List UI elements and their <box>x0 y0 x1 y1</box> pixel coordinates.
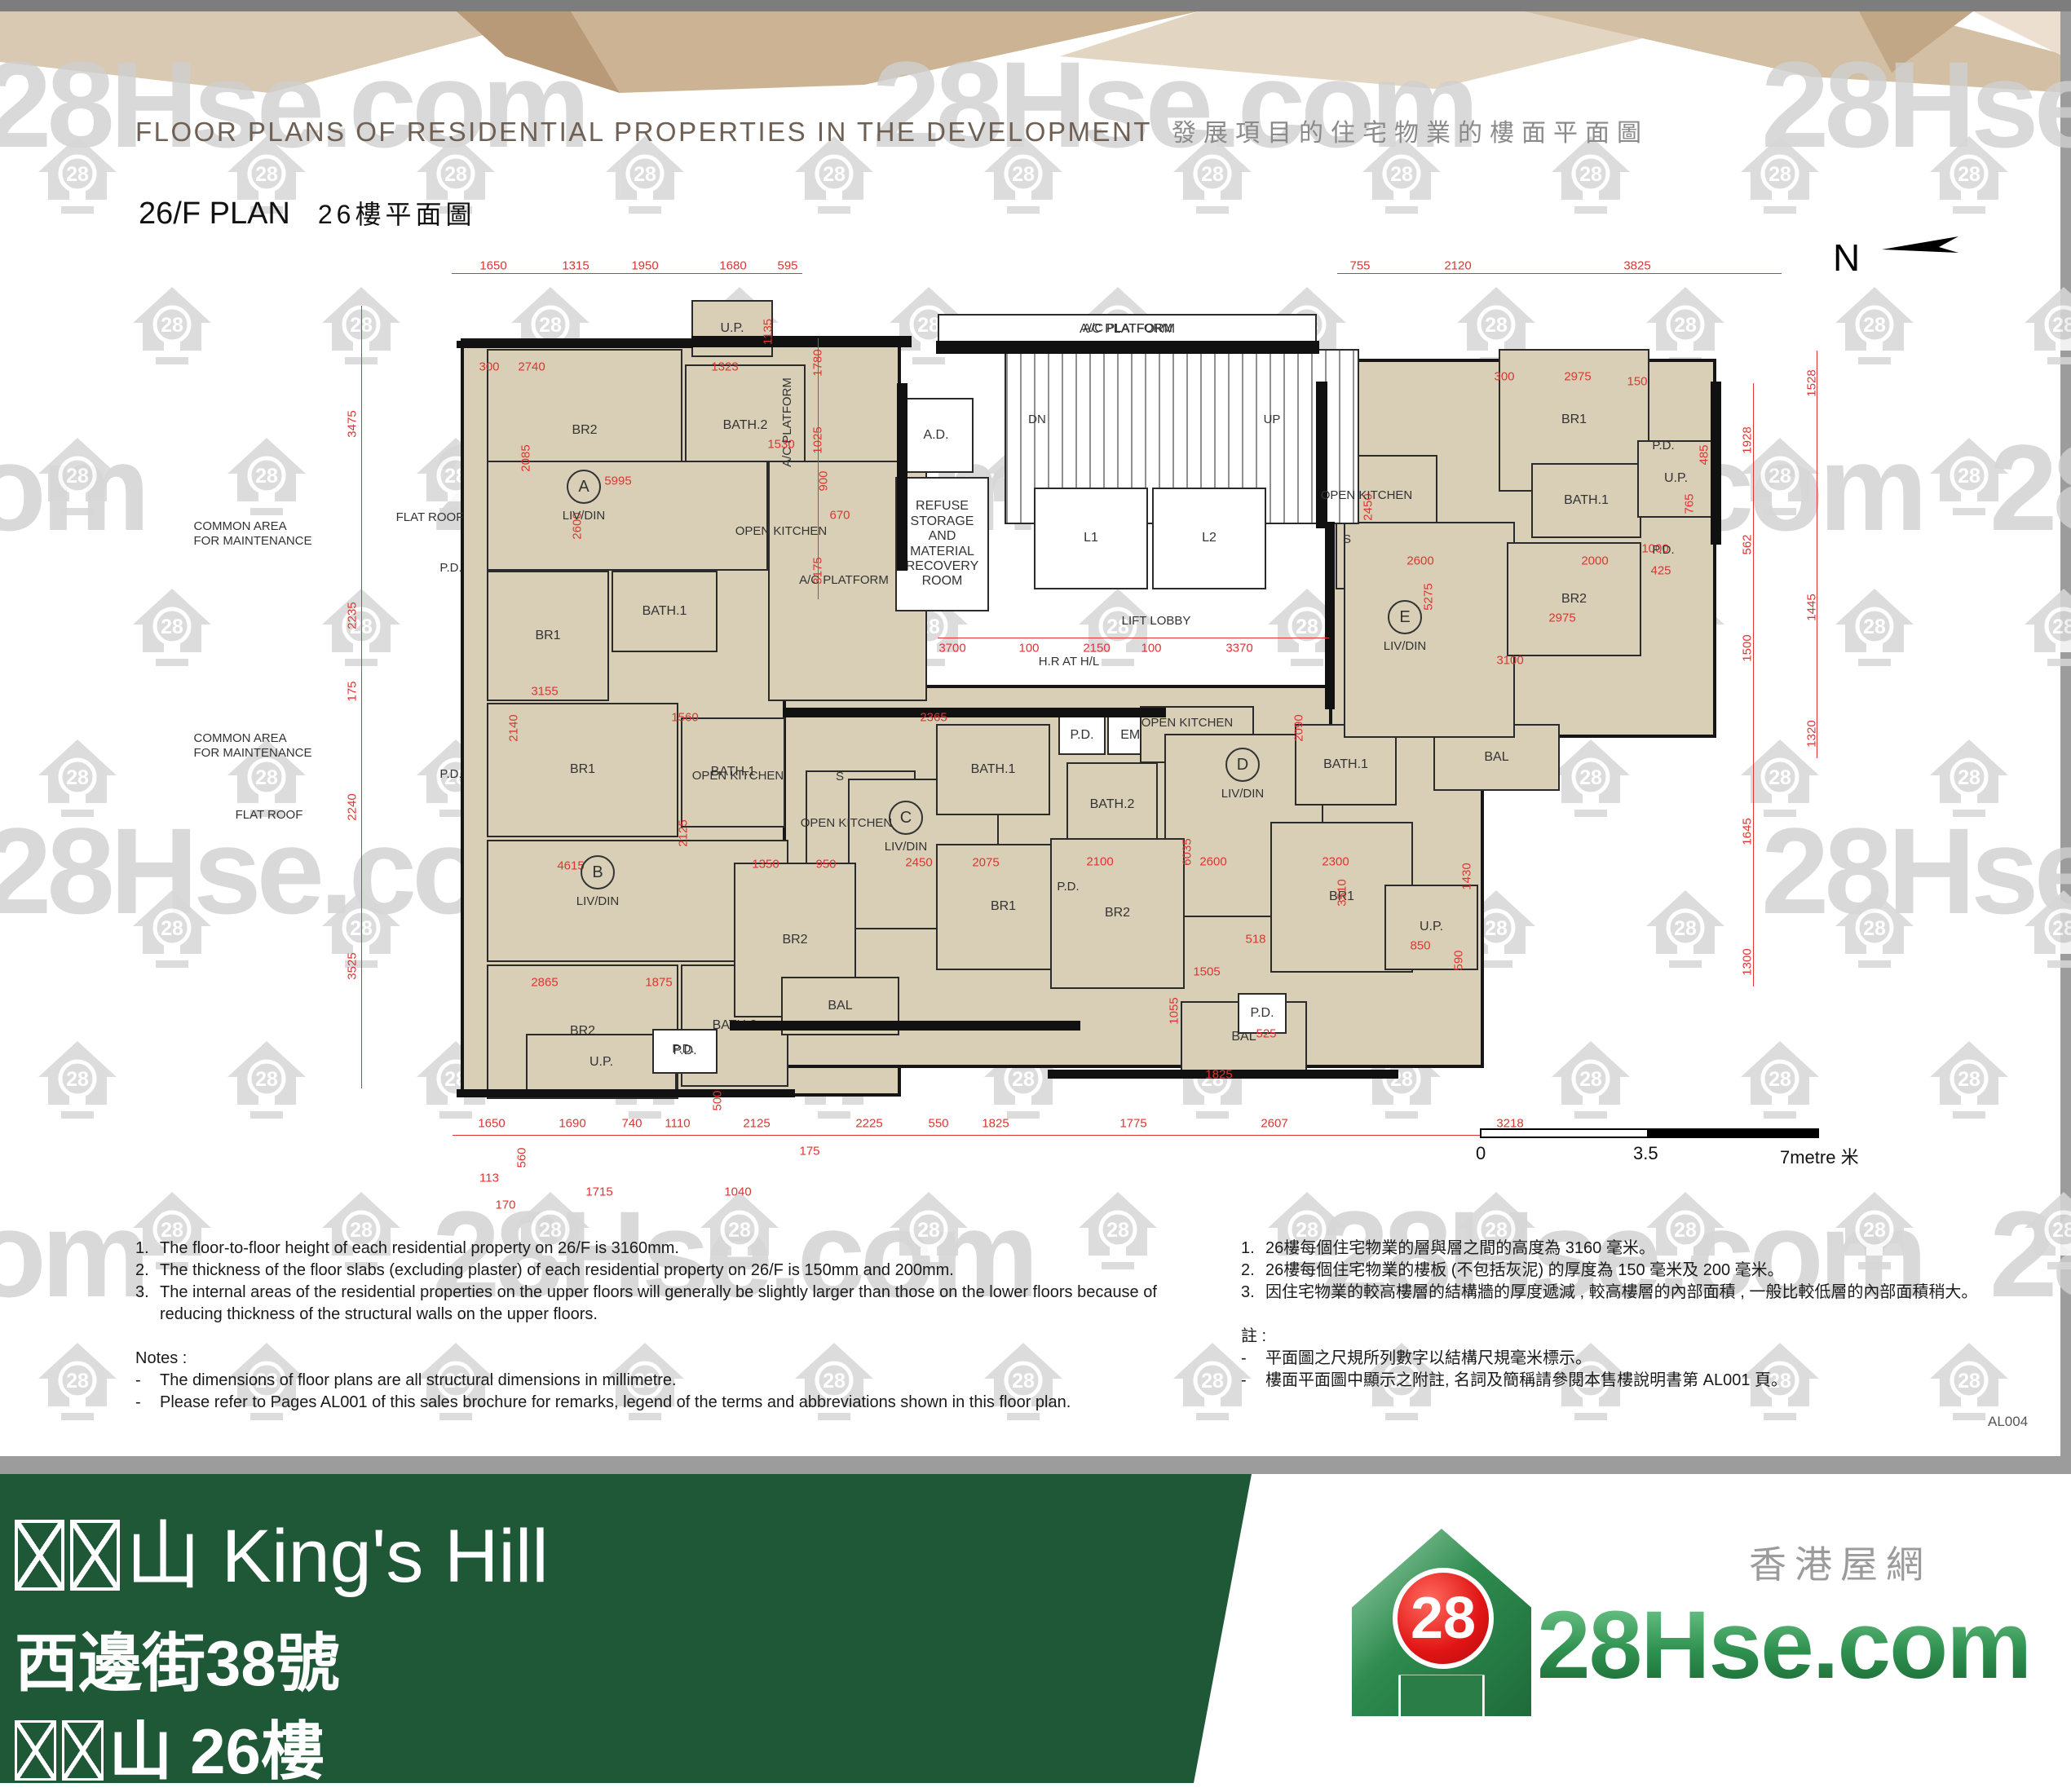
note-bullet: -The dimensions of floor plans are all s… <box>135 1370 1203 1392</box>
north-indicator: N <box>1833 235 1962 280</box>
dimension-value: 1560 <box>671 711 698 725</box>
dimension-value: 3475 <box>346 410 360 437</box>
plan-label-open-kitchen: OPEN KITCHEN <box>1321 488 1413 503</box>
dimension-value: 670 <box>829 509 850 523</box>
room-l2: L2 <box>1152 488 1266 589</box>
dimension-value: 1690 <box>559 1117 585 1131</box>
dimension-value: 550 <box>928 1117 948 1131</box>
note-text: 平面圖之尺規所列數字以結構尺規毫米標示。 <box>1265 1348 2024 1370</box>
house-door-icon <box>1401 1675 1482 1716</box>
note-text: The thickness of the floor slabs (exclud… <box>160 1260 1203 1282</box>
dimension-value: 1025 <box>811 426 825 453</box>
dimension-value: 1825 <box>982 1117 1009 1131</box>
dimension-value: 100 <box>1141 642 1161 655</box>
unit-circle-b: B <box>581 855 615 889</box>
wall-segment <box>783 708 1166 717</box>
dimension-value: 2865 <box>531 976 558 990</box>
room-br1: BR1 <box>487 571 609 701</box>
page-code: AL004 <box>1988 1414 2028 1430</box>
dimension-value: 3700 <box>938 642 965 655</box>
room-bath-2: BATH.2 <box>1066 762 1158 848</box>
note-number: 3. <box>1241 1282 1265 1304</box>
missing-glyph-box <box>62 1720 104 1781</box>
dimension-value: 3370 <box>1225 642 1252 655</box>
wall-segment <box>1316 382 1327 528</box>
dimension-line <box>938 638 1329 638</box>
dimension-value: 1680 <box>719 259 746 273</box>
dimension-value: 5995 <box>604 474 631 488</box>
dimension-value: 2740 <box>518 360 545 374</box>
dimension-value: 300 <box>479 360 499 374</box>
dimension-value: 3510 <box>1336 879 1349 906</box>
logo-badge-28: 28 <box>1393 1568 1494 1669</box>
plan-label-p-d: P.D. <box>672 1042 694 1057</box>
dimension-value: 2975 <box>1548 611 1575 625</box>
plan-label-a-c-platform: A/C PLATFORM <box>780 377 795 467</box>
floor-info: 山 26樓 <box>15 1701 325 1792</box>
dimension-line <box>452 273 802 274</box>
missing-glyph-box <box>15 1720 56 1781</box>
plan-label-s: S <box>1343 532 1351 547</box>
plan-label-common-area-for-maintenance: COMMON AREA FOR MAINTENANCE <box>193 519 311 549</box>
note-item: 1.The floor-to-floor height of each resi… <box>135 1238 1203 1260</box>
dimension-value: 595 <box>777 259 797 273</box>
note-bullet: -Please refer to Pages AL001 of this sal… <box>135 1392 1203 1414</box>
dimension-value: 2235 <box>346 602 360 629</box>
scale-start: 0 <box>1476 1143 1486 1164</box>
dimension-value: 560 <box>515 1147 529 1167</box>
note-number: 1. <box>135 1238 160 1260</box>
north-label: N <box>1833 236 1860 279</box>
wall-segment <box>730 1021 1080 1031</box>
plan-label-up: UP <box>1264 413 1281 427</box>
dimension-value: 518 <box>1245 933 1265 947</box>
dimension-value: 755 <box>1349 259 1370 273</box>
page-bottom-border <box>0 1456 2071 1474</box>
note-bullet: -樓面平面圖中顯示之附註, 名詞及簡稱請參閱本售樓說明書第 AL001 頁。 <box>1241 1370 2024 1392</box>
room-bath-1: BATH.1 <box>612 571 718 652</box>
dimension-value: 1715 <box>585 1185 612 1199</box>
dimension-value: 1950 <box>631 259 658 273</box>
floor-info-text: 山 26樓 <box>108 1715 324 1787</box>
dimension-value: 2125 <box>677 819 691 846</box>
dimension-value: 2300 <box>1322 855 1349 869</box>
plan-label-open-kitchen: OPEN KITCHEN <box>692 769 784 783</box>
dimension-value: 2100 <box>1086 855 1113 869</box>
plan-label-open-kitchen: OPEN KITCHEN <box>735 524 828 539</box>
bullet-dash: - <box>135 1392 160 1414</box>
floor-plan: BR2BATH.2BATH.1BR1U.P.BR1BATH.1BR2BATH.2… <box>0 0 2071 1223</box>
dimension-value: 1780 <box>811 349 825 376</box>
scale-end: 7metre 米 <box>1780 1143 1859 1169</box>
dimension-value: 300 <box>1494 370 1514 384</box>
dimension-value: 2240 <box>346 793 360 820</box>
logo-tagline: 香港屋網 <box>1749 1535 1932 1589</box>
development-name-text: 山 King's Hill <box>126 1515 549 1598</box>
note-item: 2.26樓每個住宅物業的樓板 (不包括灰泥) 的厚度為 150 毫米及 200 … <box>1241 1260 2024 1282</box>
dimension-value: 2075 <box>972 856 999 870</box>
dimension-value: 2975 <box>1564 370 1591 384</box>
notes-label: 註 : <box>1241 1326 2024 1348</box>
site-logo[interactable]: 28 28Hse.com 香港屋網 <box>1345 1504 2047 1749</box>
bullet-dash: - <box>1241 1370 1265 1392</box>
dimension-value: 740 <box>621 1117 642 1131</box>
scale-bar-black-segment <box>1649 1128 1819 1138</box>
dimension-value: 425 <box>1650 564 1671 578</box>
note-text: 26樓每個住宅物業的樓板 (不包括灰泥) 的厚度為 150 毫米及 200 毫米… <box>1265 1260 2024 1282</box>
note-text: The dimensions of floor plans are all st… <box>160 1370 1203 1392</box>
note-text: 因住宅物業的較高樓層的結構牆的厚度遞減 , 較高樓層的內部面積 , 一般比較低層… <box>1265 1282 2024 1304</box>
room-br2: BR2 <box>1507 542 1641 656</box>
wall-segment <box>897 383 907 571</box>
dimension-value: 525 <box>1256 1027 1276 1041</box>
dimension-value: 2125 <box>743 1117 770 1131</box>
plan-label-lift-lobby: LIFT LOBBY <box>1122 614 1191 629</box>
plan-label-liv-din: LIV/DIN <box>1384 639 1427 654</box>
plan-label-p-d: P.D. <box>1652 439 1674 453</box>
dimension-value: 3525 <box>346 952 360 979</box>
note-number: 2. <box>1241 1260 1265 1282</box>
room-bath-1: BATH.1 <box>1531 463 1641 538</box>
wall-segment <box>1325 522 1335 709</box>
street-address-text: 西邊街38號 <box>15 1627 340 1699</box>
dimension-value: 590 <box>1452 950 1466 970</box>
unit-circle-c: C <box>889 801 923 835</box>
notes-label: Notes : <box>135 1348 1203 1370</box>
bullet-dash: - <box>135 1370 160 1392</box>
note-text: 樓面平面圖中顯示之附註, 名詞及簡稱請參閱本售樓說明書第 AL001 頁。 <box>1265 1370 2024 1392</box>
plan-label-liv-din: LIV/DIN <box>885 840 928 854</box>
dimension-value: 950 <box>815 858 836 872</box>
development-name: 山 King's Hill <box>15 1495 549 1604</box>
street-address: 西邊街38號 <box>15 1613 340 1704</box>
note-text: 26樓每個住宅物業的層與層之間的高度為 3160 毫米。 <box>1265 1238 2024 1260</box>
wall-segment <box>936 341 1319 354</box>
dimension-value: 2450 <box>905 856 932 870</box>
plan-label-liv-din: LIV/DIN <box>563 509 606 523</box>
room-bath-1: BATH.1 <box>936 724 1050 815</box>
dimension-value: 1500 <box>1741 634 1755 661</box>
note-item: 3.因住宅物業的較高樓層的結構牆的厚度遞減 , 較高樓層的內部面積 , 一般比較… <box>1241 1282 2024 1304</box>
dimension-value: 150 <box>1627 375 1647 389</box>
dimension-value: 1528 <box>1805 369 1819 396</box>
dimension-value: 2150 <box>1083 642 1110 655</box>
scale-bar-white-segment <box>1480 1128 1649 1138</box>
plan-label-p-d: P.D. <box>1057 880 1079 894</box>
dimension-value: 1825 <box>1205 1068 1232 1082</box>
dimension-value: 1445 <box>1805 594 1819 620</box>
note-item: 2.The thickness of the floor slabs (excl… <box>135 1260 1203 1282</box>
unit-circle-e: E <box>1388 600 1422 634</box>
footer-banner: 山 King's Hill 西邊街38號 山 26樓 <box>0 1474 1252 1783</box>
notes-chinese: 1.26樓每個住宅物業的層與層之間的高度為 3160 毫米。2.26樓每個住宅物… <box>1241 1238 2024 1392</box>
room-refuse-storage-and-material-recovery-room: REFUSE STORAGE AND MATERIAL RECOVERY ROO… <box>895 477 989 611</box>
plan-label-dn: DN <box>1028 413 1046 427</box>
wall-segment <box>691 336 912 347</box>
dimension-value: 1875 <box>645 976 672 990</box>
dimension-line <box>1337 273 1782 274</box>
dimension-value: 1350 <box>752 858 779 872</box>
room-a-d: A.D. <box>899 398 974 473</box>
dimension-value: 2365 <box>920 711 947 725</box>
dimension-value: 2607 <box>1261 1117 1287 1131</box>
dimension-line <box>1753 383 1754 986</box>
note-bullet: -平面圖之尺規所列數字以結構尺規毫米標示。 <box>1241 1348 2024 1370</box>
dimension-line <box>1817 351 1817 758</box>
dimension-value: 2140 <box>507 714 521 741</box>
dimension-value: 562 <box>1741 534 1755 554</box>
watermark-house-icon <box>38 1343 117 1420</box>
plan-label-a-c-platform: A/C PLATFORM <box>799 573 889 588</box>
dimension-value: 1775 <box>1119 1117 1146 1131</box>
room-l1: L1 <box>1034 488 1148 589</box>
plan-label-s: S <box>836 770 844 784</box>
dimension-value: 2000 <box>1581 554 1608 568</box>
dimension-value: 1315 <box>562 259 589 273</box>
plan-label-p-d: P.D. <box>1652 543 1674 558</box>
dimension-value: 170 <box>495 1198 515 1212</box>
dimension-value: 3100 <box>1496 654 1523 668</box>
dimension-value: 1323 <box>711 360 738 374</box>
bullet-dash: - <box>1241 1348 1265 1370</box>
dimension-value: 2225 <box>855 1117 882 1131</box>
plan-label-h-r-at-h-l: H.R AT H/L <box>1039 655 1099 669</box>
wall-segment <box>457 1089 795 1097</box>
unit-circle-a: A <box>567 470 601 504</box>
dimension-value: 2600 <box>1406 554 1433 568</box>
plan-label-common-area-for-maintenance: COMMON AREA FOR MAINTENANCE <box>193 731 311 761</box>
dimension-value: 1645 <box>1741 818 1755 845</box>
dimension-value: 485 <box>1698 444 1711 465</box>
dimension-value: 100 <box>1018 642 1039 655</box>
missing-glyph-box <box>70 1520 120 1591</box>
dimension-value: 3825 <box>1623 259 1650 273</box>
dimension-value: 5275 <box>1422 583 1436 610</box>
dimension-value: 1320 <box>1805 720 1819 747</box>
scale-bar: 0 3.5 7metre 米 <box>1480 1128 1819 1140</box>
plan-label-liv-din: LIV/DIN <box>576 894 620 909</box>
plan-label-open-kitchen: OPEN KITCHEN <box>801 816 893 831</box>
plan-label-liv-din: LIV/DIN <box>1221 787 1265 801</box>
logo-badge-text: 28 <box>1411 1585 1476 1652</box>
spacer <box>135 1326 1203 1348</box>
dimension-value: 113 <box>479 1172 499 1185</box>
dimension-value: 1110 <box>665 1117 690 1131</box>
notes-english: 1.The floor-to-floor height of each resi… <box>135 1238 1203 1414</box>
dimension-value: 1650 <box>479 259 506 273</box>
plan-label-flat-roof: FLAT ROOF <box>396 510 464 525</box>
note-number: 2. <box>135 1260 160 1282</box>
north-arrow-icon <box>1880 235 1962 259</box>
dimension-value: 175 <box>346 681 360 701</box>
dimension-line <box>361 306 362 1088</box>
dimension-value: 2090 <box>1292 714 1306 741</box>
dimension-value: 500 <box>711 1090 725 1110</box>
unit-circle-d: D <box>1225 748 1260 782</box>
dimension-value: 2600 <box>1199 855 1226 869</box>
room-br2: BR2 <box>1050 838 1185 989</box>
room-p-d: P.D. <box>1058 716 1106 755</box>
plan-label-flat-roof: FLAT ROOF <box>236 808 303 823</box>
wall-segment <box>1711 382 1721 545</box>
dimension-value: 1300 <box>1741 948 1755 975</box>
note-text: The floor-to-floor height of each reside… <box>160 1238 1203 1260</box>
note-text: The internal areas of the residential pr… <box>160 1282 1203 1326</box>
scale-mid: 3.5 <box>1633 1143 1658 1164</box>
spacer <box>1241 1304 2024 1326</box>
plan-label-a-c-platform: A/C PLATFORM <box>1083 321 1172 336</box>
plan-label-p-d: P.D. <box>439 767 461 782</box>
note-number: 3. <box>135 1282 160 1326</box>
note-item: 1.26樓每個住宅物業的層與層之間的高度為 3160 毫米。 <box>1241 1238 2024 1260</box>
note-number: 1. <box>1241 1238 1265 1260</box>
dimension-value: 1040 <box>724 1185 751 1199</box>
dimension-value: 1055 <box>1168 997 1181 1024</box>
dimension-value: 175 <box>799 1145 819 1159</box>
dimension-value: 3155 <box>531 685 558 699</box>
dimension-value: 765 <box>1683 493 1697 514</box>
dimension-value: 1928 <box>1741 426 1755 453</box>
dimension-value: 1505 <box>1193 965 1220 979</box>
plan-label-open-kitchen: OPEN KITCHEN <box>1141 716 1234 730</box>
note-item: 3.The internal areas of the residential … <box>135 1282 1203 1326</box>
dimension-value: 1430 <box>1460 863 1474 889</box>
missing-glyph-box <box>15 1520 64 1591</box>
dimension-value: 850 <box>1410 939 1430 953</box>
dimension-value: 1650 <box>478 1117 505 1131</box>
dimension-value: 1135 <box>762 319 775 345</box>
logo-brand-text: 28Hse.com <box>1537 1590 2030 1701</box>
dimension-value: 6035 <box>1181 838 1194 865</box>
dimension-value: 900 <box>817 470 831 491</box>
wall-segment <box>457 341 693 348</box>
plan-label-p-d: P.D. <box>439 561 461 576</box>
dimension-value: 2120 <box>1444 259 1471 273</box>
dimension-value: 2085 <box>519 444 533 471</box>
note-text: Please refer to Pages AL001 of this sale… <box>160 1392 1203 1414</box>
